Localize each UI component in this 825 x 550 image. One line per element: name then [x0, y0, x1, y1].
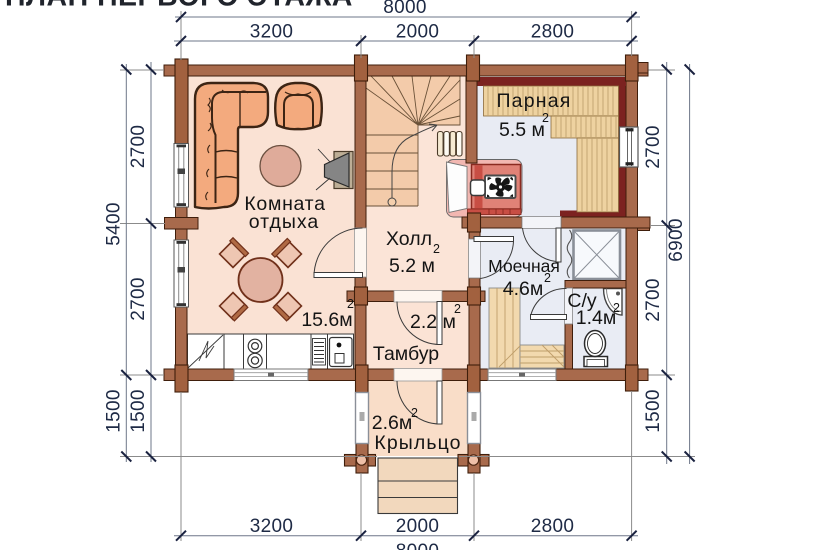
svg-text:2700: 2700 [643, 278, 664, 321]
svg-text:ПЛАН ПЕРВОГО ЭТАЖА: ПЛАН ПЕРВОГО ЭТАЖА [5, 0, 353, 13]
svg-text:2.2 м: 2.2 м [410, 311, 456, 333]
svg-text:2: 2 [613, 301, 620, 315]
svg-text:2: 2 [542, 111, 549, 125]
svg-text:1.4м: 1.4м [576, 307, 617, 329]
svg-text:2: 2 [347, 297, 354, 311]
svg-text:2000: 2000 [396, 22, 439, 43]
svg-text:5.2 м: 5.2 м [389, 255, 435, 277]
svg-text:6900: 6900 [666, 218, 687, 261]
svg-text:3200: 3200 [250, 516, 293, 537]
svg-text:8000: 8000 [383, 0, 426, 18]
svg-text:8000: 8000 [396, 541, 439, 550]
svg-text:2000: 2000 [396, 516, 439, 537]
svg-text:2700: 2700 [643, 125, 664, 168]
svg-text:1500: 1500 [643, 389, 664, 432]
svg-text:15.6м: 15.6м [301, 309, 352, 331]
svg-text:Холл: Холл [386, 228, 432, 250]
svg-text:Крыльцо: Крыльцо [374, 432, 461, 454]
svg-text:5400: 5400 [103, 202, 124, 245]
svg-text:Парная: Парная [496, 90, 571, 112]
svg-text:5.5 м: 5.5 м [499, 119, 545, 141]
svg-text:2: 2 [433, 242, 440, 256]
svg-text:2800: 2800 [531, 516, 574, 537]
svg-text:1500: 1500 [128, 389, 149, 432]
svg-text:2: 2 [411, 406, 418, 420]
svg-text:1500: 1500 [103, 389, 124, 432]
svg-text:2.6м: 2.6м [372, 412, 413, 434]
svg-text:2700: 2700 [128, 277, 149, 320]
svg-text:2700: 2700 [128, 125, 149, 168]
svg-text:4.6м: 4.6м [503, 278, 544, 300]
svg-text:2: 2 [544, 271, 551, 285]
svg-text:Тамбур: Тамбур [373, 343, 439, 365]
svg-text:отдыха: отдыха [249, 211, 319, 233]
svg-text:3200: 3200 [250, 22, 293, 43]
svg-text:2: 2 [454, 302, 461, 316]
svg-text:2800: 2800 [531, 22, 574, 43]
